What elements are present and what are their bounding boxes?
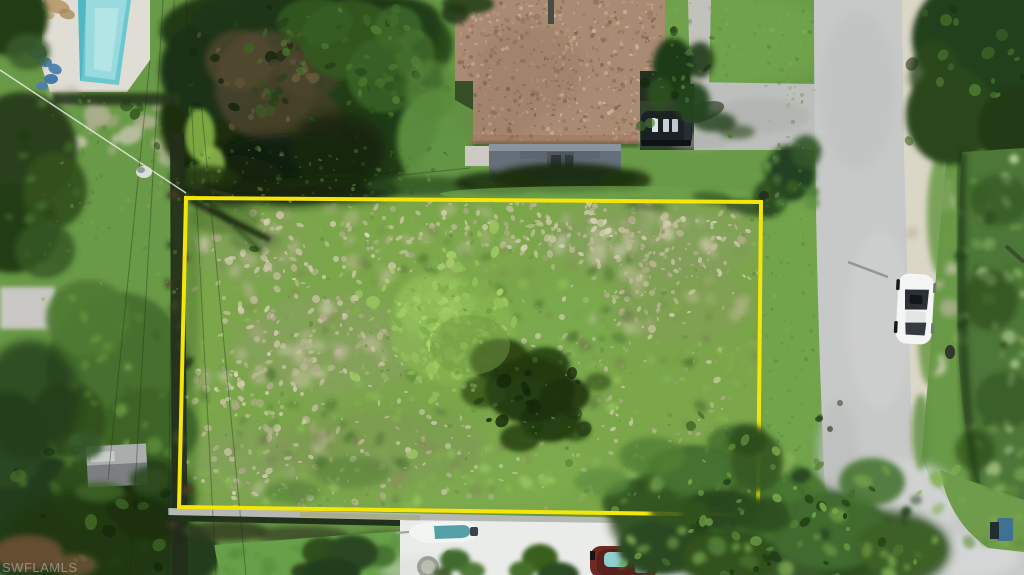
svg-text:SWFLAMLS: SWFLAMLS [2,560,78,575]
